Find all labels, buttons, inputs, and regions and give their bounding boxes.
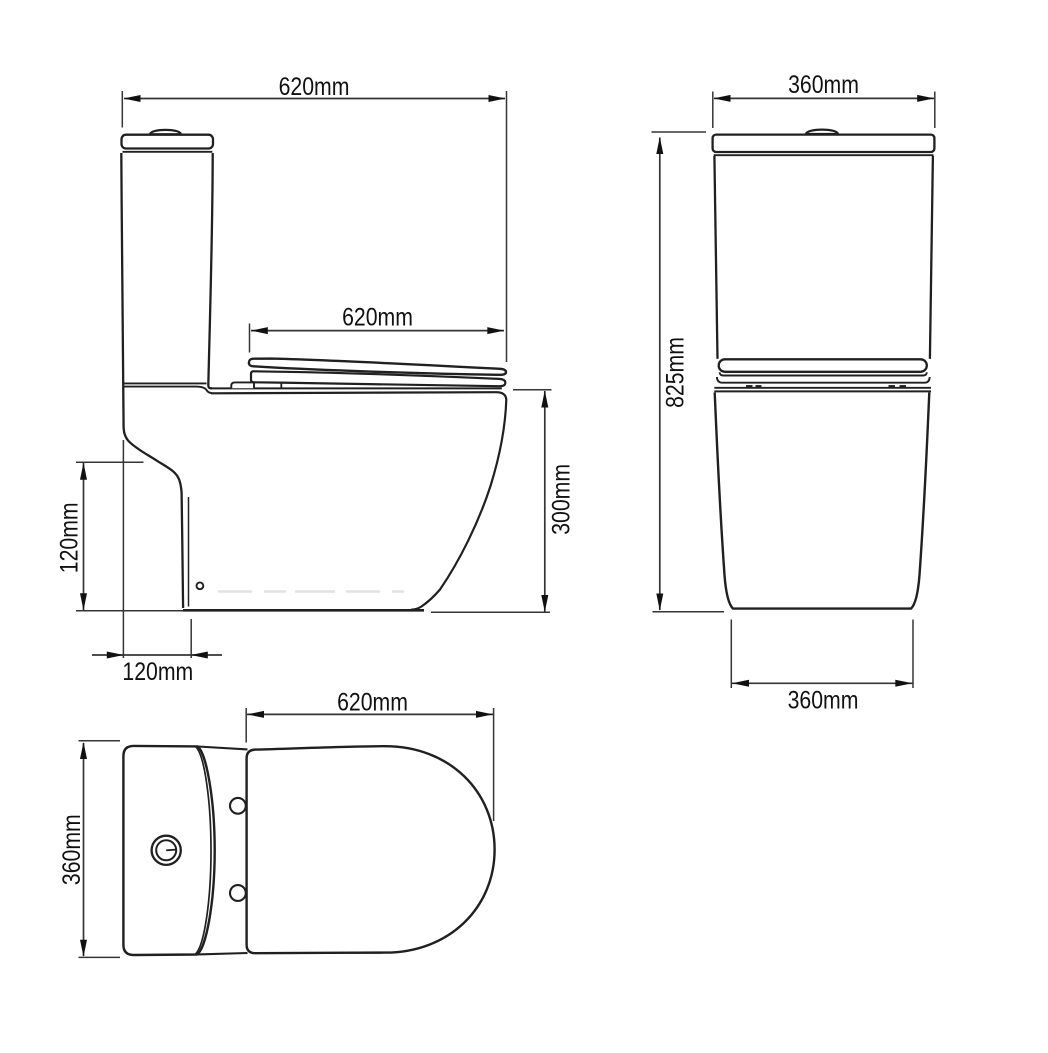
svg-text:360mm: 360mm	[788, 70, 859, 98]
svg-text:620mm: 620mm	[342, 303, 413, 331]
svg-text:360mm: 360mm	[788, 686, 859, 714]
svg-text:120mm: 120mm	[122, 657, 193, 685]
svg-text:360mm: 360mm	[57, 814, 85, 885]
svg-text:300mm: 300mm	[547, 464, 575, 535]
svg-text:620mm: 620mm	[279, 72, 350, 100]
svg-text:120mm: 120mm	[55, 502, 83, 573]
svg-text:620mm: 620mm	[337, 688, 408, 716]
svg-text:825mm: 825mm	[661, 337, 689, 408]
